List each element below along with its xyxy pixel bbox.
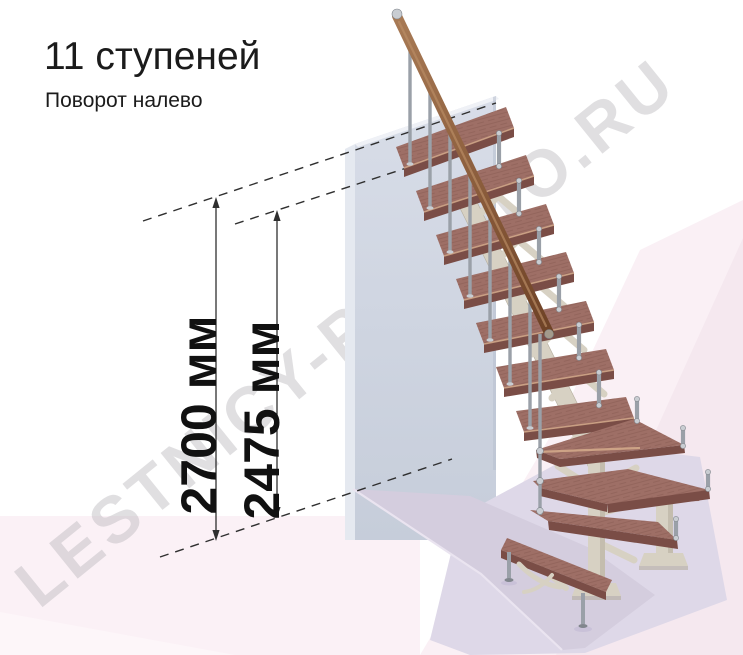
frame-column-right-base-front [639,566,688,570]
frame-column-center-base-front [572,596,621,600]
post-fitting [537,448,544,455]
post-ball [596,370,601,375]
post-ball [556,274,561,279]
post-ball [673,535,678,540]
page-title: 11 ступеней [44,36,260,79]
post-ball [680,425,685,430]
staircase-diagram-stage: LESTNICY-PROSTO.RU [0,0,743,655]
post-ball [516,178,521,183]
post-ball [705,486,710,491]
post-ball [516,211,521,216]
post-ball [634,396,639,401]
leg-foot [579,624,588,628]
post-fitting [537,478,544,485]
post-ball [596,403,601,408]
baluster-flange [487,338,494,342]
post-ball [634,418,639,423]
dimension-label-2700: 2700 мм [171,315,227,514]
leg-foot [505,578,514,582]
post-ball [496,131,501,136]
post-fitting [537,508,544,515]
dimension-label-2475: 2475 мм [234,320,290,519]
baluster-flange [447,250,454,254]
post-ball [673,516,678,521]
page-subtitle: Поворот налево [45,89,203,112]
wall-side-face [345,144,355,540]
post-ball [576,355,581,360]
baluster-flange [467,294,474,298]
baluster-flange [527,426,534,430]
post-ball [496,164,501,169]
post-ball [705,469,710,474]
handrail-end-cap [545,330,554,339]
baluster-flange [427,206,434,210]
baluster-flange [507,382,514,386]
frame-column-right-base [639,553,688,566]
post-ball [536,226,541,231]
post-ball [556,307,561,312]
post-ball [536,259,541,264]
baluster-flange [407,162,414,166]
handrail-top-cap [392,9,402,19]
post-ball [576,322,581,327]
post-ball [680,443,685,448]
